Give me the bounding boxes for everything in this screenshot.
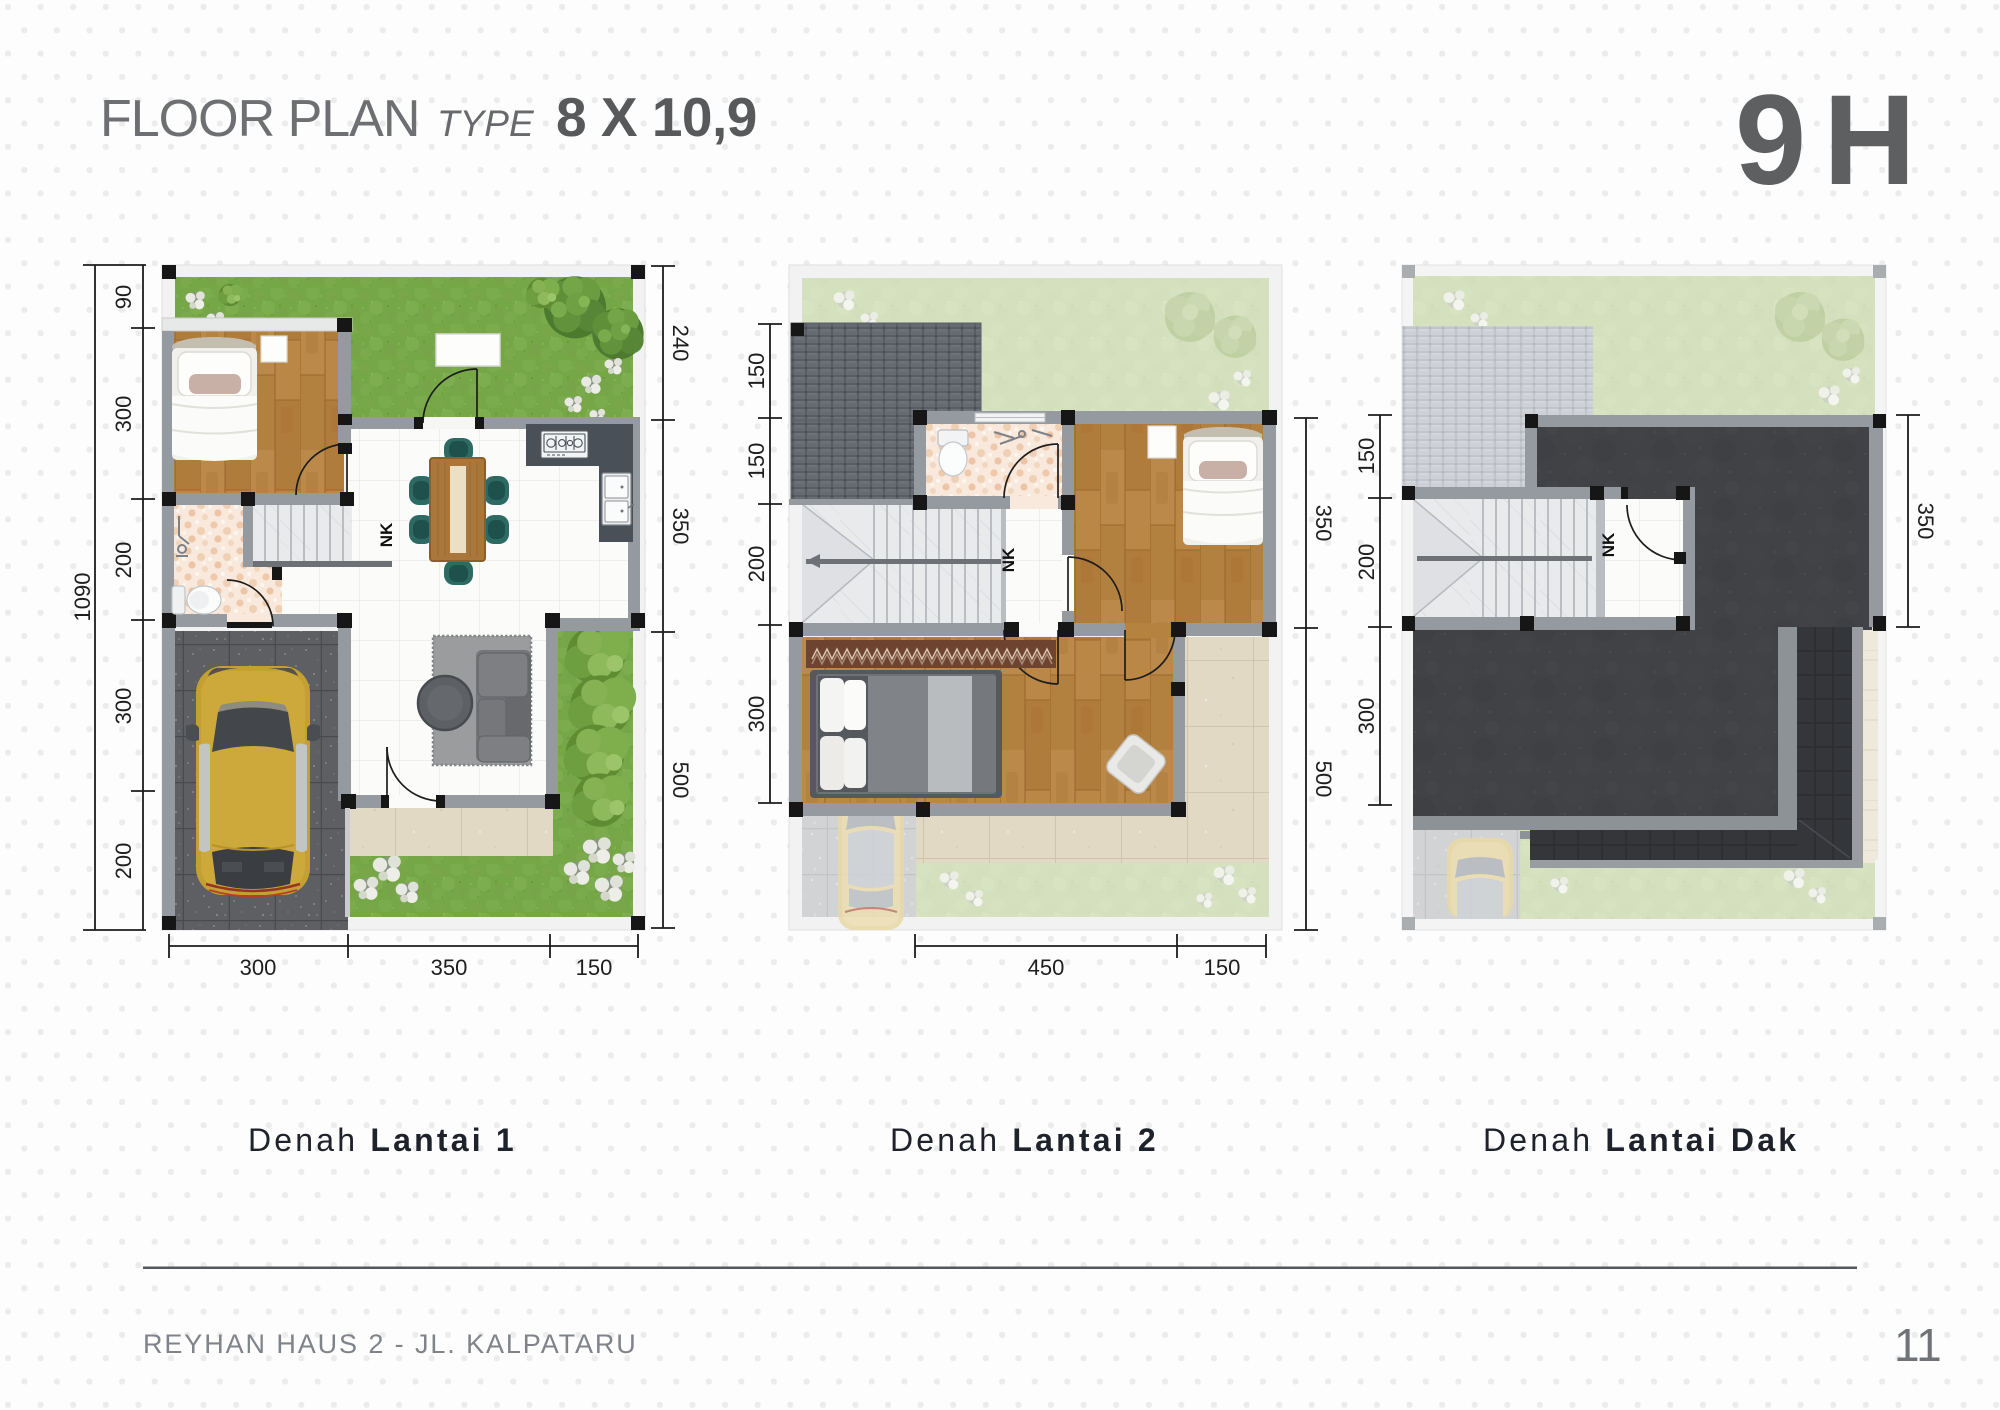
svg-text:350: 350 — [1311, 505, 1336, 542]
svg-text:300: 300 — [240, 955, 277, 980]
svg-text:150: 150 — [1204, 955, 1241, 980]
svg-text:300: 300 — [111, 688, 136, 725]
svg-text:NK: NK — [999, 547, 1018, 572]
svg-text:300: 300 — [744, 696, 769, 733]
svg-text:TYPE: TYPE — [437, 103, 535, 144]
svg-text:240: 240 — [668, 325, 693, 362]
svg-text:500: 500 — [1311, 761, 1336, 798]
svg-text:200: 200 — [111, 843, 136, 880]
svg-text:8 X 10,9: 8 X 10,9 — [556, 86, 757, 148]
svg-text:90: 90 — [111, 285, 136, 309]
svg-text:Denah Lantai Dak: Denah Lantai Dak — [1483, 1122, 1799, 1158]
svg-text:350: 350 — [668, 508, 693, 545]
svg-text:Denah Lantai 2: Denah Lantai 2 — [890, 1122, 1159, 1158]
svg-text:1090: 1090 — [70, 573, 95, 622]
svg-text:REYHAN HAUS 2 - JL. KALPATARU: REYHAN HAUS 2 - JL. KALPATARU — [143, 1329, 638, 1359]
svg-text:500: 500 — [668, 762, 693, 799]
svg-text:350: 350 — [1913, 503, 1938, 540]
svg-text:450: 450 — [1028, 955, 1065, 980]
svg-text:NK: NK — [377, 522, 396, 547]
svg-text:200: 200 — [1354, 544, 1379, 581]
svg-text:FLOOR PLAN: FLOOR PLAN — [100, 90, 419, 148]
svg-text:200: 200 — [111, 542, 136, 579]
svg-text:300: 300 — [111, 396, 136, 433]
svg-text:150: 150 — [576, 955, 613, 980]
svg-text:NK: NK — [1599, 532, 1618, 557]
svg-text:150: 150 — [1354, 438, 1379, 475]
svg-text:Denah Lantai 1: Denah Lantai 1 — [248, 1122, 517, 1158]
svg-text:200: 200 — [744, 546, 769, 583]
svg-text:350: 350 — [431, 955, 468, 980]
svg-text:300: 300 — [1354, 698, 1379, 735]
svg-text:11: 11 — [1894, 1319, 1942, 1371]
svg-text:9H: 9H — [1735, 69, 1933, 212]
svg-text:150: 150 — [744, 353, 769, 390]
svg-text:150: 150 — [744, 443, 769, 480]
